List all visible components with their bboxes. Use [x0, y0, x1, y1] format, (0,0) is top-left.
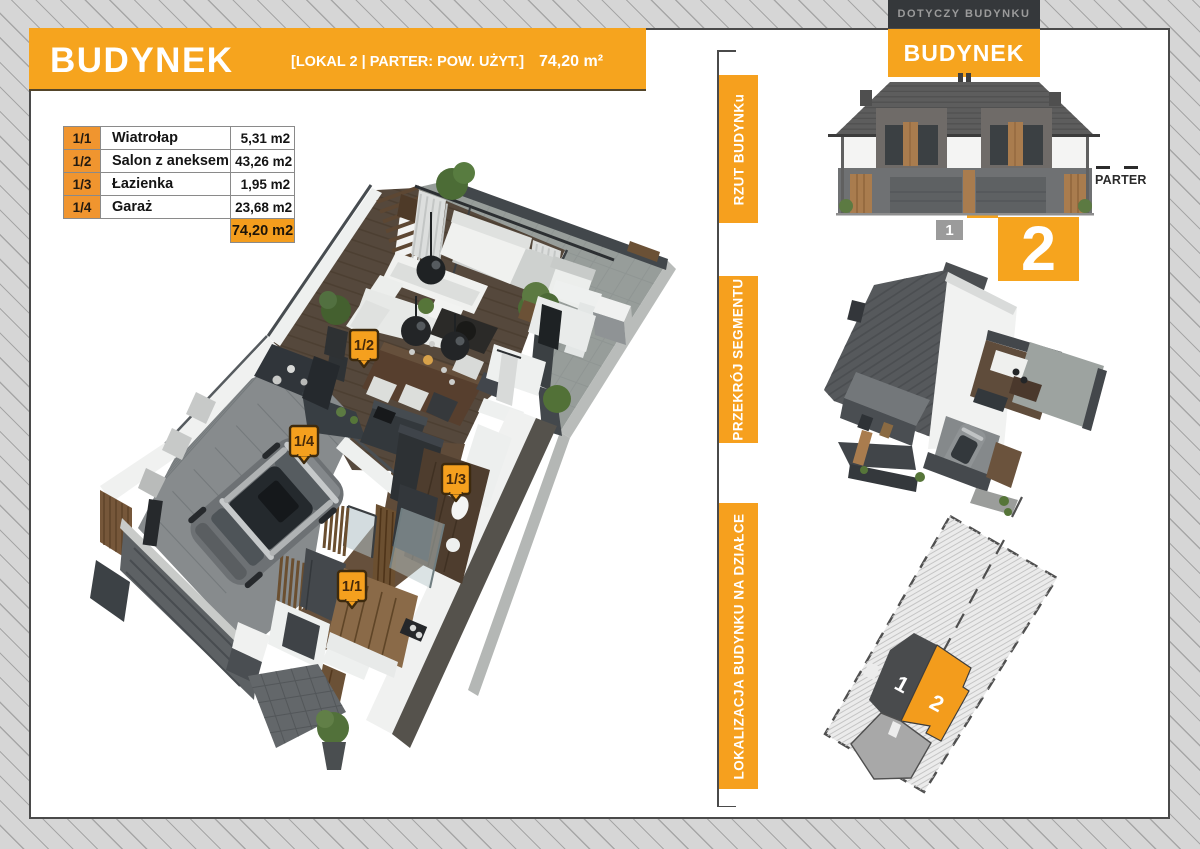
svg-text:1/3: 1/3: [446, 472, 466, 488]
svg-text:1/2: 1/2: [354, 338, 374, 354]
svg-text:1/4: 1/4: [294, 434, 314, 450]
svg-text:1/1: 1/1: [342, 579, 362, 595]
